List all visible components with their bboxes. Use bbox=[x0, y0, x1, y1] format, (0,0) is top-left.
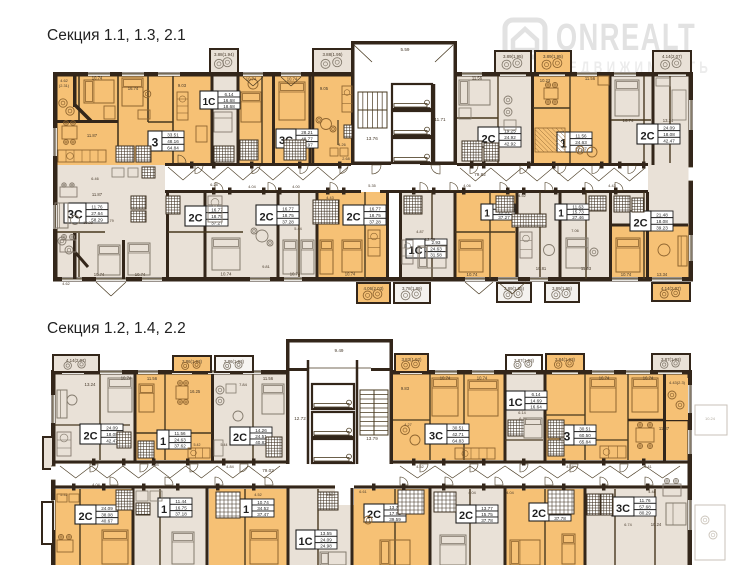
svg-text:4.14(2.07): 4.14(2.07) bbox=[662, 54, 683, 59]
svg-text:24.63: 24.63 bbox=[174, 437, 186, 442]
svg-text:12.59: 12.59 bbox=[425, 237, 436, 242]
svg-text:16.77: 16.77 bbox=[369, 206, 381, 211]
svg-text:27.46: 27.46 bbox=[572, 215, 584, 220]
svg-text:4.00: 4.00 bbox=[292, 185, 299, 189]
svg-text:11.63: 11.63 bbox=[572, 204, 584, 209]
svg-text:1С: 1С bbox=[203, 97, 216, 108]
svg-text:2.68: 2.68 bbox=[342, 157, 349, 161]
svg-text:10.81: 10.81 bbox=[536, 266, 547, 271]
svg-text:80.29: 80.29 bbox=[639, 511, 651, 516]
svg-text:9.03: 9.03 bbox=[178, 83, 187, 88]
svg-text:37.62: 37.62 bbox=[174, 444, 186, 449]
svg-text:13.77: 13.77 bbox=[481, 506, 493, 511]
svg-text:37.27: 37.27 bbox=[211, 221, 223, 226]
svg-text:11.56: 11.56 bbox=[575, 133, 587, 138]
svg-text:1: 1 bbox=[560, 137, 567, 151]
svg-text:7.84: 7.84 bbox=[239, 382, 248, 387]
svg-text:2С: 2С bbox=[640, 131, 654, 143]
svg-text:58.29: 58.29 bbox=[91, 218, 103, 223]
svg-text:4.43: 4.43 bbox=[608, 184, 615, 188]
svg-text:37.18: 37.18 bbox=[175, 512, 187, 517]
svg-text:13.34: 13.34 bbox=[657, 272, 668, 277]
svg-text:11.56: 11.56 bbox=[472, 76, 483, 81]
svg-text:2С: 2С bbox=[259, 212, 273, 224]
svg-text:18.75: 18.75 bbox=[369, 213, 381, 218]
svg-text:6.14: 6.14 bbox=[225, 92, 234, 97]
svg-text:16.77: 16.77 bbox=[211, 207, 223, 212]
svg-text:24.98: 24.98 bbox=[320, 544, 332, 549]
svg-text:11.63: 11.63 bbox=[581, 266, 592, 271]
svg-text:10.24: 10.24 bbox=[651, 522, 662, 527]
svg-text:6.46: 6.46 bbox=[91, 177, 98, 181]
svg-text:10.74: 10.74 bbox=[345, 272, 356, 277]
svg-text:10.74: 10.74 bbox=[257, 500, 269, 505]
svg-text:6.74: 6.74 bbox=[624, 523, 631, 527]
svg-text:16.68: 16.68 bbox=[223, 98, 235, 103]
svg-text:11.56: 11.56 bbox=[263, 376, 274, 381]
svg-text:16.74: 16.74 bbox=[623, 118, 635, 123]
svg-text:18.75: 18.75 bbox=[282, 213, 294, 218]
svg-text:24.09: 24.09 bbox=[101, 506, 113, 511]
svg-text:10.74: 10.74 bbox=[287, 77, 298, 82]
svg-text:10.28: 10.28 bbox=[83, 221, 93, 225]
svg-text:42.47: 42.47 bbox=[663, 139, 675, 144]
svg-text:1: 1 bbox=[243, 504, 249, 516]
svg-text:3С: 3С bbox=[67, 208, 83, 222]
svg-text:11.56: 11.56 bbox=[585, 76, 596, 81]
svg-text:12.72: 12.72 bbox=[294, 416, 306, 421]
svg-text:10.74: 10.74 bbox=[121, 376, 132, 381]
svg-text:3.88(1.95): 3.88(1.95) bbox=[322, 52, 343, 57]
svg-text:37.28: 37.28 bbox=[282, 220, 294, 225]
svg-text:13.24: 13.24 bbox=[85, 382, 97, 387]
svg-text:3С: 3С bbox=[616, 503, 630, 515]
svg-text:18.08: 18.08 bbox=[663, 132, 675, 137]
svg-text:3.78(1.89): 3.78(1.89) bbox=[402, 286, 423, 291]
svg-text:5.44: 5.44 bbox=[294, 227, 301, 231]
svg-text:4.48: 4.48 bbox=[648, 490, 655, 494]
svg-text:4.04: 4.04 bbox=[248, 185, 255, 189]
svg-text:11.87: 11.87 bbox=[659, 426, 670, 431]
svg-text:30.51: 30.51 bbox=[579, 426, 591, 431]
svg-text:(2.31): (2.31) bbox=[59, 83, 70, 88]
svg-text:10.23: 10.23 bbox=[540, 78, 551, 83]
svg-text:2С: 2С bbox=[83, 431, 97, 443]
svg-text:14.26: 14.26 bbox=[255, 428, 267, 433]
svg-text:28.21: 28.21 bbox=[301, 130, 313, 135]
svg-text:10.74: 10.74 bbox=[92, 76, 103, 81]
svg-text:65.84: 65.84 bbox=[579, 440, 591, 445]
svg-text:4.84: 4.84 bbox=[226, 465, 233, 469]
svg-text:39.59: 39.59 bbox=[389, 517, 401, 522]
svg-text:4.04: 4.04 bbox=[506, 491, 513, 495]
svg-text:Секция 1.1, 1.3, 2.1: Секция 1.1, 1.3, 2.1 bbox=[47, 27, 186, 44]
svg-text:3.89(1.95): 3.89(1.95) bbox=[543, 54, 564, 59]
svg-text:10.74: 10.74 bbox=[221, 272, 233, 277]
svg-text:24.09: 24.09 bbox=[320, 537, 332, 542]
svg-text:11.76: 11.76 bbox=[639, 498, 651, 503]
svg-text:33.51: 33.51 bbox=[167, 132, 179, 137]
svg-text:5.44: 5.44 bbox=[221, 443, 228, 447]
svg-text:40.67: 40.67 bbox=[101, 519, 113, 524]
svg-text:24.92: 24.92 bbox=[504, 135, 516, 140]
svg-text:3: 3 bbox=[152, 136, 159, 150]
svg-text:4.04: 4.04 bbox=[468, 491, 475, 495]
svg-text:2С: 2С bbox=[346, 212, 360, 224]
svg-text:4.43(2.3): 4.43(2.3) bbox=[669, 380, 686, 385]
svg-text:2С: 2С bbox=[78, 511, 92, 523]
svg-text:2С: 2С bbox=[532, 508, 546, 520]
svg-text:13.55: 13.55 bbox=[320, 531, 332, 536]
svg-text:11.76: 11.76 bbox=[91, 204, 103, 209]
svg-text:4.06(2.03): 4.06(2.03) bbox=[363, 286, 384, 291]
svg-text:9.49: 9.49 bbox=[335, 348, 344, 353]
svg-text:34.52: 34.52 bbox=[257, 506, 269, 511]
svg-text:10.74: 10.74 bbox=[621, 272, 632, 277]
svg-text:3.89(1.95): 3.89(1.95) bbox=[503, 54, 524, 59]
svg-text:4.26: 4.26 bbox=[338, 143, 345, 147]
svg-text:3.88(1.94): 3.88(1.94) bbox=[214, 52, 235, 57]
svg-text:42.47: 42.47 bbox=[106, 439, 118, 444]
svg-text:11.56: 11.56 bbox=[147, 376, 158, 381]
svg-text:15.73: 15.73 bbox=[572, 210, 584, 215]
svg-text:13.76: 13.76 bbox=[366, 136, 378, 141]
svg-text:16.74: 16.74 bbox=[128, 86, 139, 91]
svg-text:2С: 2С bbox=[233, 432, 247, 444]
svg-text:10.74: 10.74 bbox=[477, 376, 488, 381]
svg-text:39.23: 39.23 bbox=[656, 226, 668, 231]
svg-text:1: 1 bbox=[160, 436, 166, 448]
svg-text:21.48: 21.48 bbox=[656, 212, 668, 217]
svg-text:3: 3 bbox=[564, 430, 571, 444]
svg-text:6.61: 6.61 bbox=[359, 490, 366, 494]
svg-text:18.75: 18.75 bbox=[211, 214, 223, 219]
svg-text:37.47: 37.47 bbox=[257, 512, 269, 517]
svg-text:11.87: 11.87 bbox=[92, 192, 103, 197]
svg-text:15.75: 15.75 bbox=[481, 512, 493, 517]
svg-text:31.58: 31.58 bbox=[430, 253, 442, 258]
svg-text:64.83: 64.83 bbox=[452, 439, 464, 444]
svg-text:3С: 3С bbox=[429, 431, 443, 443]
svg-text:16.74: 16.74 bbox=[599, 376, 610, 381]
svg-text:79.02: 79.02 bbox=[262, 468, 274, 473]
svg-text:18.08: 18.08 bbox=[106, 432, 118, 437]
svg-text:38.08: 38.08 bbox=[101, 512, 113, 517]
svg-text:10.74: 10.74 bbox=[290, 272, 301, 277]
svg-text:37.78: 37.78 bbox=[481, 518, 493, 523]
svg-text:1: 1 bbox=[484, 208, 490, 219]
svg-text:9.81: 9.81 bbox=[262, 264, 271, 269]
svg-text:2С: 2С bbox=[367, 509, 381, 521]
svg-text:42.92: 42.92 bbox=[504, 142, 516, 147]
svg-text:13.79: 13.79 bbox=[366, 436, 378, 441]
svg-text:4.04: 4.04 bbox=[92, 483, 99, 487]
svg-text:79.82: 79.82 bbox=[474, 172, 486, 177]
svg-text:16.25: 16.25 bbox=[190, 389, 201, 394]
svg-text:5.59: 5.59 bbox=[401, 47, 410, 52]
svg-text:7.06: 7.06 bbox=[571, 229, 578, 233]
svg-text:1: 1 bbox=[558, 208, 564, 219]
svg-text:9.83: 9.83 bbox=[401, 386, 410, 391]
svg-text:6.14: 6.14 bbox=[532, 392, 541, 397]
svg-text:40.82: 40.82 bbox=[255, 440, 267, 445]
svg-text:1: 1 bbox=[161, 504, 167, 516]
svg-text:10.74: 10.74 bbox=[94, 272, 105, 277]
svg-text:4.43: 4.43 bbox=[326, 196, 333, 200]
svg-text:4.52: 4.52 bbox=[518, 194, 525, 198]
svg-text:16.64: 16.64 bbox=[530, 405, 542, 410]
svg-text:10.74: 10.74 bbox=[440, 376, 451, 381]
svg-text:6.14: 6.14 bbox=[518, 411, 525, 415]
svg-text:37.28: 37.28 bbox=[369, 220, 381, 225]
svg-text:30.51: 30.51 bbox=[452, 425, 464, 430]
svg-text:10.74: 10.74 bbox=[467, 272, 479, 277]
svg-text:48.16: 48.16 bbox=[167, 139, 179, 144]
svg-text:60.50: 60.50 bbox=[579, 433, 591, 438]
svg-text:64.84: 64.84 bbox=[167, 146, 179, 151]
svg-text:1С: 1С bbox=[298, 536, 312, 548]
svg-text:11.71: 11.71 bbox=[434, 117, 446, 122]
svg-text:11.87: 11.87 bbox=[87, 133, 98, 138]
svg-text:Секция 1.2, 1.4, 2.2: Секция 1.2, 1.4, 2.2 bbox=[47, 320, 186, 337]
svg-text:42.71: 42.71 bbox=[452, 432, 464, 437]
svg-text:16.74: 16.74 bbox=[643, 376, 654, 381]
svg-text:11.44: 11.44 bbox=[175, 499, 187, 504]
svg-text:14.69: 14.69 bbox=[530, 398, 542, 403]
svg-text:57.68: 57.68 bbox=[639, 504, 651, 509]
svg-text:4.52: 4.52 bbox=[254, 493, 261, 497]
svg-text:24.09: 24.09 bbox=[106, 425, 118, 430]
svg-text:11.56: 11.56 bbox=[174, 431, 186, 436]
svg-text:24.63: 24.63 bbox=[575, 140, 587, 145]
svg-text:24.63: 24.63 bbox=[430, 246, 442, 251]
svg-text:27.64: 27.64 bbox=[91, 211, 103, 216]
svg-text:24.51: 24.51 bbox=[255, 434, 267, 439]
svg-text:10.24: 10.24 bbox=[705, 416, 716, 421]
svg-text:24.09: 24.09 bbox=[663, 125, 675, 130]
svg-text:2С: 2С bbox=[633, 218, 647, 230]
svg-text:18.68: 18.68 bbox=[223, 104, 235, 109]
svg-text:6.28: 6.28 bbox=[210, 183, 217, 187]
svg-text:4.06: 4.06 bbox=[463, 184, 470, 188]
svg-text:10.74: 10.74 bbox=[135, 272, 146, 277]
svg-text:16.75: 16.75 bbox=[175, 505, 187, 510]
svg-text:2С: 2С bbox=[188, 213, 202, 225]
svg-text:4.59: 4.59 bbox=[326, 493, 333, 497]
svg-text:4.62: 4.62 bbox=[62, 282, 69, 286]
svg-text:4.87: 4.87 bbox=[416, 230, 423, 234]
svg-text:5.42: 5.42 bbox=[194, 443, 201, 447]
svg-text:16.77: 16.77 bbox=[282, 206, 294, 211]
svg-text:5.35: 5.35 bbox=[368, 184, 375, 188]
svg-text:37.27: 37.27 bbox=[498, 215, 510, 220]
svg-text:2С: 2С bbox=[459, 510, 473, 522]
svg-text:18.08: 18.08 bbox=[656, 219, 668, 224]
svg-text:1С: 1С bbox=[508, 397, 522, 409]
svg-text:19.25: 19.25 bbox=[504, 128, 516, 133]
svg-text:9.05: 9.05 bbox=[320, 86, 329, 91]
svg-text:37.78: 37.78 bbox=[554, 516, 566, 521]
